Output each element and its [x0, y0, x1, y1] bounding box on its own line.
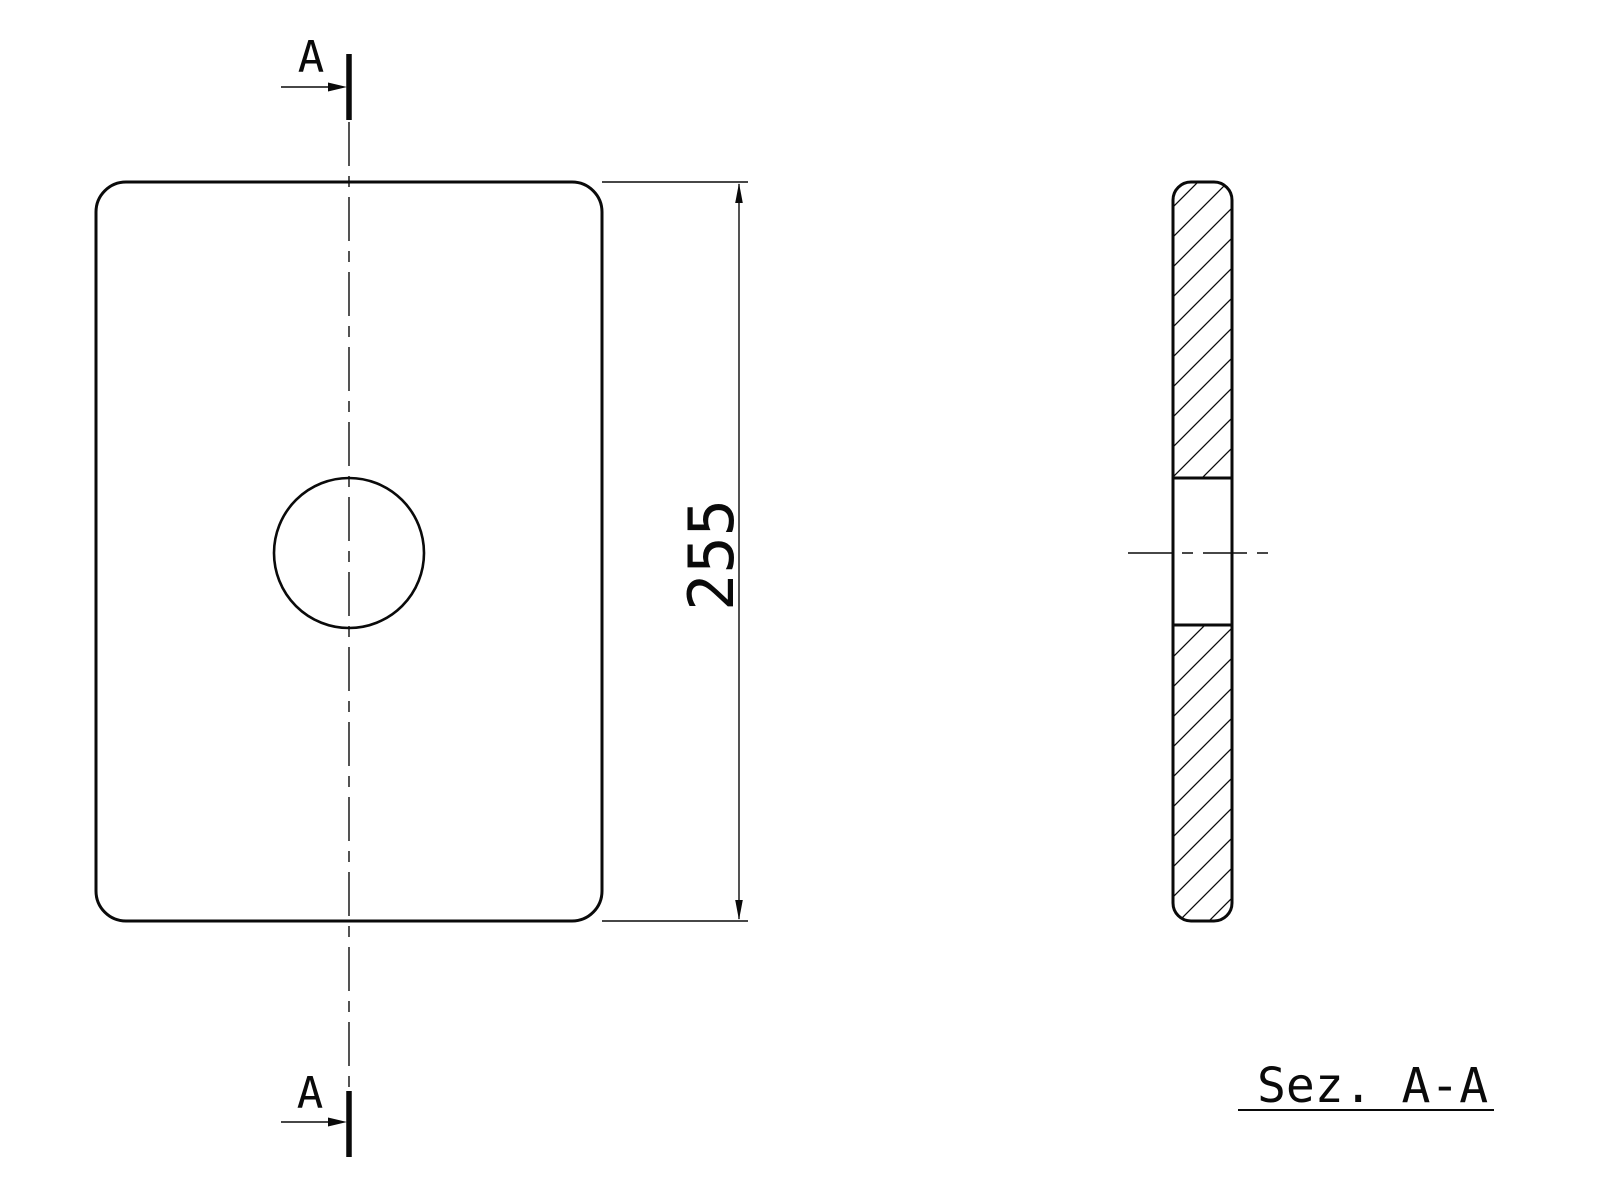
- drawing-canvas: A A 255 Sez. A-A: [0, 0, 1600, 1200]
- cut-label-bottom: A: [297, 1068, 324, 1119]
- drawing-background: [0, 0, 1600, 1200]
- dimension-text: 255: [675, 499, 748, 611]
- section-title-block: Sez. A-A: [1238, 1058, 1494, 1114]
- cut-label-top: A: [298, 32, 325, 83]
- technical-drawing: A A 255 Sez. A-A: [0, 0, 1600, 1200]
- section-title: Sez. A-A: [1257, 1058, 1488, 1114]
- hole-band: [1172, 479, 1233, 624]
